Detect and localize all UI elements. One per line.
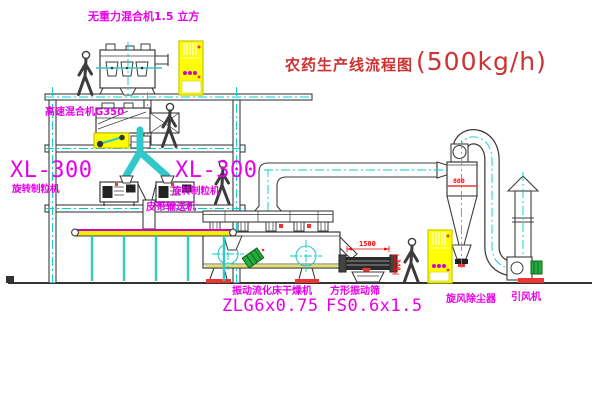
label-fan: 引风机 [511, 293, 541, 303]
person-roof [79, 51, 93, 94]
label-granulator-center-model: XL-300 [175, 160, 257, 182]
label-gravityless-mixer: 无重力混合机1.5 立方 [88, 11, 199, 22]
dimension-sieve-height: 340 [395, 259, 402, 271]
label-belt-conveyor: 皮带输送机 [146, 203, 196, 213]
control-cabinet-top [179, 41, 203, 95]
cabinet-knob [193, 71, 197, 75]
title-text: 农药生产线流程图 [285, 54, 413, 75]
fluid-bed-dryer [203, 211, 357, 283]
granulator-left-unit [100, 182, 138, 206]
label-sieve-model: FS0.6x1.5 [326, 298, 423, 315]
person-ground [405, 238, 419, 281]
cabinet-knob [183, 71, 187, 75]
dryer-exhaust-duct [253, 162, 450, 213]
person-second-floor [163, 103, 177, 146]
label-granulator-center-name: 旋转制粒机 [172, 187, 220, 197]
label-granulator-left-name: 旋转制粒机 [12, 185, 60, 195]
label-granulator-left-model: XL-300 [10, 160, 92, 182]
induced-draft-fan [507, 257, 544, 283]
cabinet-knob [437, 264, 441, 268]
cabinet-knob [188, 71, 192, 75]
label-cyclone: 旋风除尘器 [446, 295, 496, 305]
label-high-speed-mixer: 高速混合机G350 [45, 108, 124, 118]
dimension-sieve-length: 1500 [359, 241, 376, 248]
title-capacity: (500kg/h) [416, 47, 547, 76]
fan-motor [531, 261, 542, 274]
control-cabinet-right [428, 230, 452, 283]
dimension-cyclone: 800 [453, 178, 465, 185]
gravityless-mixer [96, 42, 168, 96]
drawing-title: 农药生产线流程图 (500kg/h) [285, 47, 547, 76]
cabinet-knob [432, 264, 436, 268]
label-dryer-model: ZLG6x0.75 [222, 298, 319, 315]
cabinet-knob [442, 264, 446, 268]
process-flow-drawing: 农药生产线流程图 (500kg/h) 无重力混合机1.5 立方 高速混合机G35… [0, 0, 600, 403]
